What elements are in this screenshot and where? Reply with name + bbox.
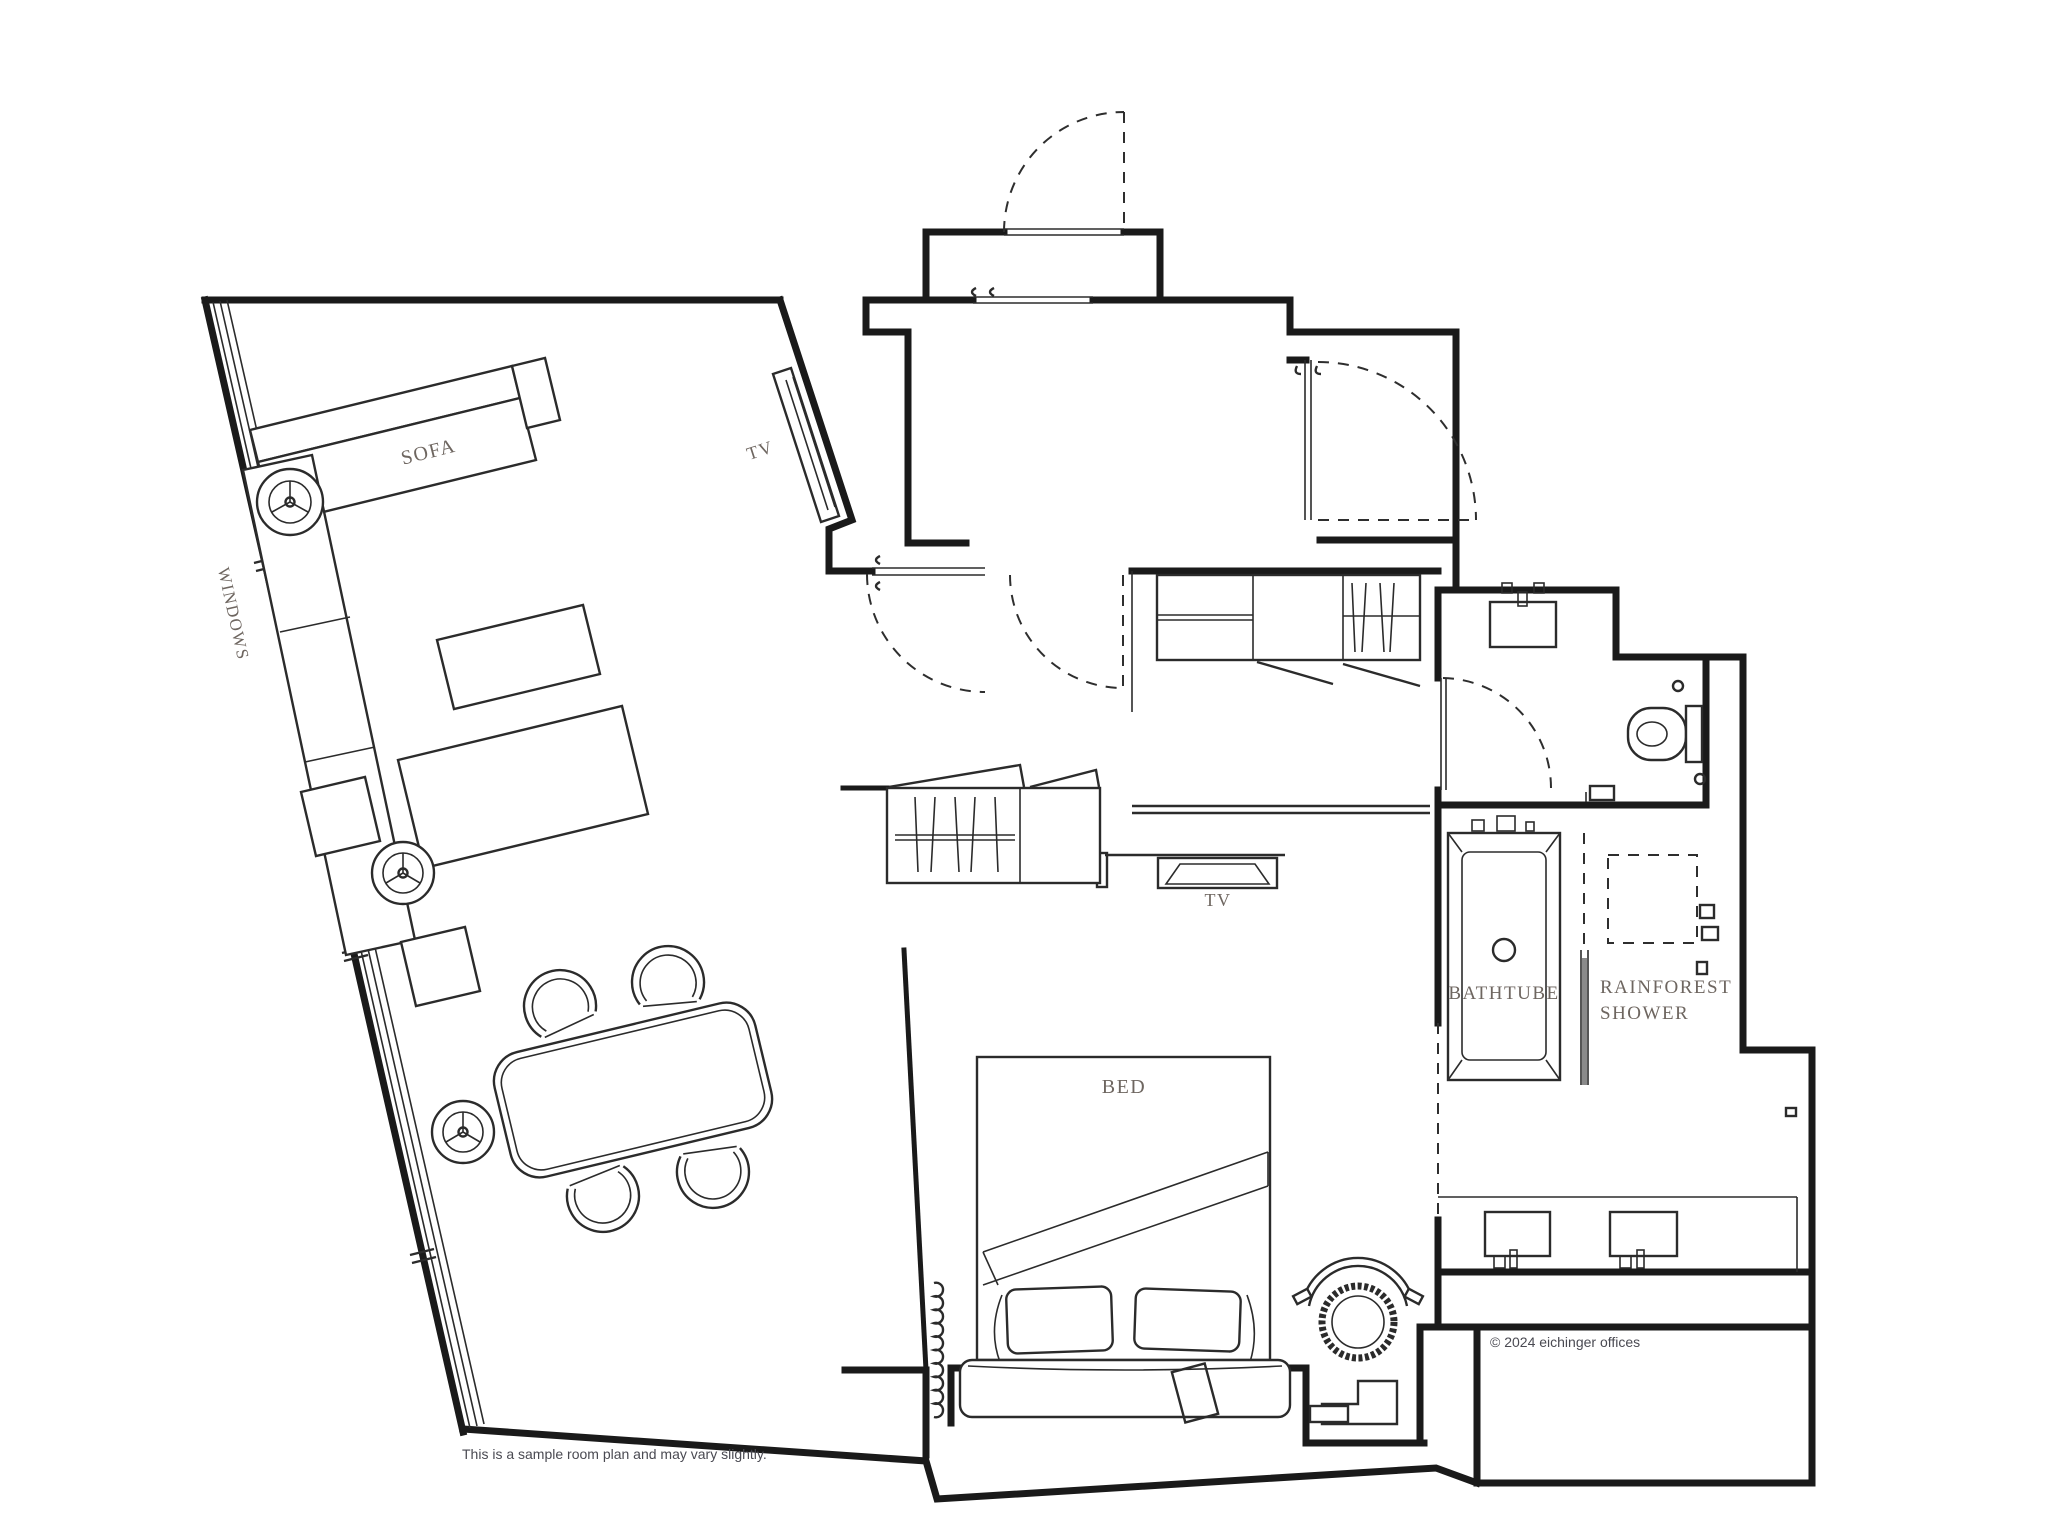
shower-label-line1: RAINFOREST <box>1600 977 1732 998</box>
storage-door-leaf <box>1305 360 1311 520</box>
sink <box>1490 602 1556 647</box>
curtain-coil <box>934 1283 943 1418</box>
vanity <box>1438 1197 1797 1272</box>
shower-label-line2: SHOWER <box>1600 1003 1689 1024</box>
bathtub <box>1448 816 1560 1080</box>
door-hinge-icon <box>1296 366 1321 374</box>
floor-plan-page: SOFA TV WINDOWS TV BED BATHTUBE RAINFORE… <box>0 0 2048 1536</box>
entry-door-swing <box>1004 112 1124 232</box>
bed <box>960 1057 1290 1423</box>
floor-plan: SOFA TV WINDOWS TV BED BATHTUBE RAINFORE… <box>0 0 2048 1536</box>
tp-holder <box>1590 786 1614 800</box>
hall-door-swing-left <box>867 574 985 692</box>
hall-door-swing-right <box>1010 575 1123 688</box>
copyright-text: © 2024 eichinger offices <box>1490 1334 1640 1350</box>
windows-label: WINDOWS <box>214 566 253 662</box>
hall-door-leaf <box>872 568 985 575</box>
bed-label: BED <box>1102 1076 1147 1098</box>
doors <box>872 229 1446 790</box>
entry-door-leaf <box>1004 229 1124 235</box>
storage-door-swing <box>1318 362 1476 520</box>
toilet-door-leaf <box>1441 678 1446 790</box>
shower-head-outline <box>1608 855 1697 943</box>
tv-bedroom <box>1158 858 1277 888</box>
door-hinge-icon <box>876 556 880 590</box>
shower-partition <box>1581 833 1588 1085</box>
vestibule-door-leaf <box>973 297 1093 303</box>
tv-bedroom-label: TV <box>1205 890 1232 910</box>
bedroom-wardrobe <box>887 765 1100 883</box>
door-hinge-icon <box>972 288 994 296</box>
hall-closet <box>1157 575 1420 686</box>
desk-nook <box>1310 1381 1397 1424</box>
toilet-room <box>1490 583 1705 802</box>
tv-living-label: TV <box>744 437 776 464</box>
toilet <box>1628 706 1702 762</box>
dining-table <box>488 996 778 1183</box>
toilet-door-swing <box>1443 678 1551 788</box>
disclaimer-text: This is a sample room plan and may vary … <box>462 1446 767 1462</box>
bathtub-label: BATHTUBE <box>1448 983 1559 1004</box>
round-chair <box>1293 1258 1423 1358</box>
